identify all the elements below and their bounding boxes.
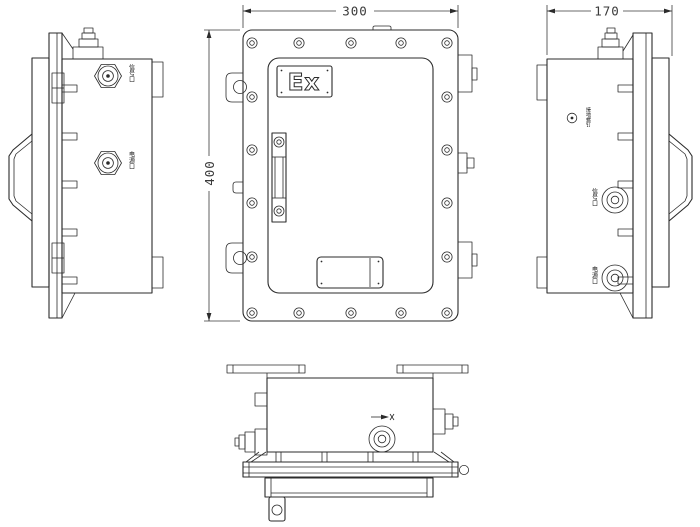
front-view-top-bump: [373, 26, 391, 30]
front-view-handle: [272, 133, 286, 222]
engineering-drawing-canvas: 信号口 电源口 Ex: [0, 0, 700, 527]
bottom-view-latch-ring: [459, 465, 468, 474]
bottom-view-mount-strip-right: [397, 365, 468, 373]
right-view-mount-tab-top: [537, 65, 547, 100]
right-view-port-bottom-icon: [602, 265, 628, 291]
dimension-width-300: 300: [243, 4, 458, 29]
bottom-view-mount-strip-left: [227, 365, 305, 373]
bottom-view-hinge-tab: [269, 497, 285, 521]
right-view-top-chamfer: [623, 35, 633, 51]
bottom-view-cable-gland: [235, 429, 267, 455]
front-view-right-fitting-bottom: [458, 242, 477, 278]
bottom-view-gussets: [246, 452, 454, 462]
left-view-flange-plate: [49, 33, 62, 318]
front-view-left-nub: [233, 182, 243, 193]
dim-width-text: 300: [342, 4, 368, 19]
dim-depth-text: 170: [594, 4, 620, 19]
bottom-view-left-tab: [255, 393, 267, 406]
ex-nameplate: Ex: [277, 66, 332, 97]
right-view-port-bottom-label: 电源口: [591, 265, 598, 285]
cover-bolts: [247, 38, 452, 318]
left-view-body: [62, 59, 152, 293]
bottom-view: [227, 365, 469, 521]
left-view-bottom-chamfer: [62, 293, 75, 318]
dimension-depth-170: 170: [547, 4, 672, 57]
bottom-view-right-fitting: [433, 409, 458, 434]
bottom-view-body: [267, 378, 433, 452]
left-view-top-chamfer: [62, 33, 73, 49]
front-view: Ex: [226, 26, 477, 321]
right-view-port-top-icon: [602, 187, 628, 213]
right-view-door-plate: [652, 58, 669, 287]
right-side-view: 接地螺钉 信号口 电源口: [537, 28, 692, 318]
bottom-view-port-icon: [369, 426, 395, 452]
ex-marking-text: Ex: [288, 70, 321, 96]
right-view-flange-plate: [633, 33, 652, 318]
left-view-door-plate: [32, 58, 49, 287]
bottom-view-studs: [276, 452, 418, 462]
right-view-cable-gland: [598, 28, 623, 59]
left-view-mount-tab-bottom: [152, 257, 163, 288]
left-view-mount-tab-top: [152, 62, 163, 97]
bottom-view-door-plate: [265, 478, 433, 497]
dim-height-text: 400: [202, 160, 217, 186]
right-view-mount-tab-bottom: [537, 257, 547, 288]
right-view-bolt-tabs: [618, 85, 633, 284]
cable-entry-marker: [371, 414, 394, 420]
front-view-window-plate: [317, 257, 383, 288]
left-view-port-bottom-label: 电源口: [128, 150, 135, 170]
left-view-port-top-label: 信号口: [128, 63, 135, 83]
ground-screw-icon: [567, 113, 577, 123]
right-view-body: [547, 59, 633, 293]
left-side-view: 信号口 电源口: [9, 28, 163, 318]
ground-screw-label: 接地螺钉: [585, 106, 591, 128]
right-view-handle: [669, 134, 692, 221]
dimension-height-400: 400: [202, 30, 240, 321]
right-view-bottom-chamfer: [620, 293, 633, 318]
right-view-port-top-label: 信号口: [591, 187, 598, 207]
left-view-port-bottom-icon: [95, 152, 122, 175]
left-view-port-top-icon: [95, 65, 122, 88]
front-view-right-fitting-top: [458, 55, 477, 92]
left-view-handle: [9, 134, 32, 221]
front-view-right-fitting-middle: [458, 153, 474, 173]
bottom-view-flange-bar: [243, 462, 458, 477]
left-view-cable-gland: [73, 28, 103, 59]
